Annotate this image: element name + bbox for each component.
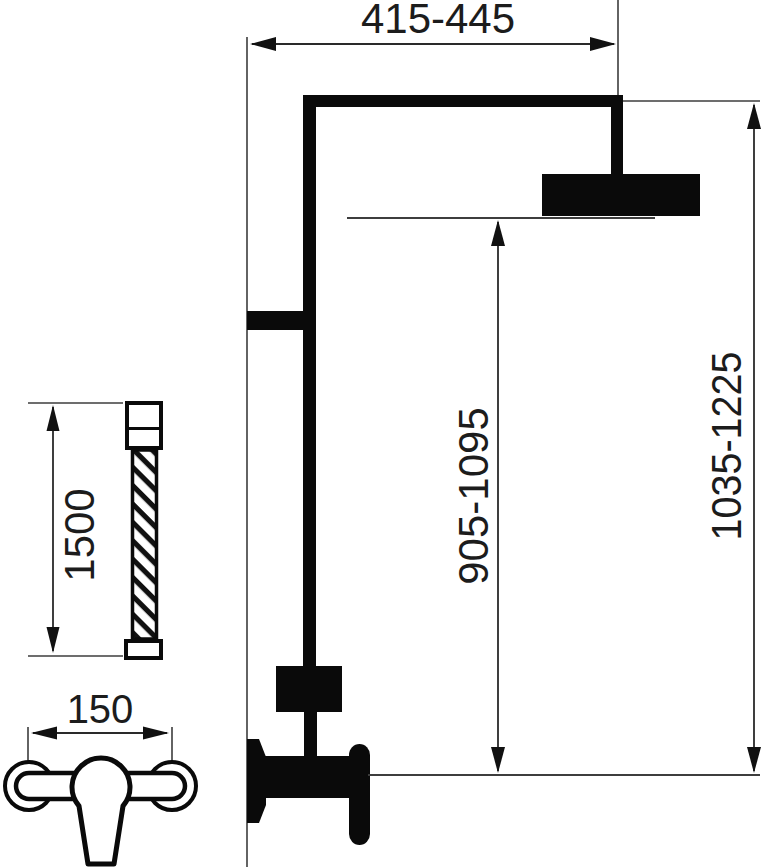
wall-bracket (247, 311, 315, 330)
shower-arm (303, 95, 623, 107)
mixer-front-view (5, 727, 196, 865)
lower-pipe (304, 711, 317, 759)
hose-bottom-connector (126, 641, 161, 658)
arrow-right-icon (590, 37, 616, 51)
shower-head (542, 174, 700, 216)
dim-label-head-height: 905-1095 (453, 376, 495, 616)
dim-head-height-lines (347, 218, 655, 773)
head-drop-pipe (611, 95, 623, 175)
dim-label-overall-height: 1035-1225 (706, 333, 748, 559)
mixer-body (262, 756, 350, 798)
arrow-down-icon (747, 747, 761, 773)
dim-label-hose-length: 1500 (59, 455, 101, 615)
mixer-handle (349, 744, 370, 845)
riser-pipe (303, 95, 316, 666)
arrow-down-icon (47, 627, 60, 653)
arrow-up-icon (47, 405, 60, 431)
arrow-up-icon (491, 220, 505, 246)
dim-label-mixer-width: 150 (30, 689, 170, 729)
drawing-linework (0, 0, 763, 867)
hose-flex-body (133, 450, 157, 639)
arrow-up-icon (747, 103, 761, 129)
hose-top-connector (127, 403, 161, 448)
arrow-down-icon (491, 747, 505, 773)
diverter-body (276, 666, 342, 712)
arrow-left-icon (250, 37, 276, 51)
shower-technical-drawing: 415-445 905-1095 1035-1225 1500 150 (0, 0, 763, 867)
dim-label-top-width: 415-445 (318, 0, 558, 40)
mixer-lever-handle (72, 758, 130, 864)
